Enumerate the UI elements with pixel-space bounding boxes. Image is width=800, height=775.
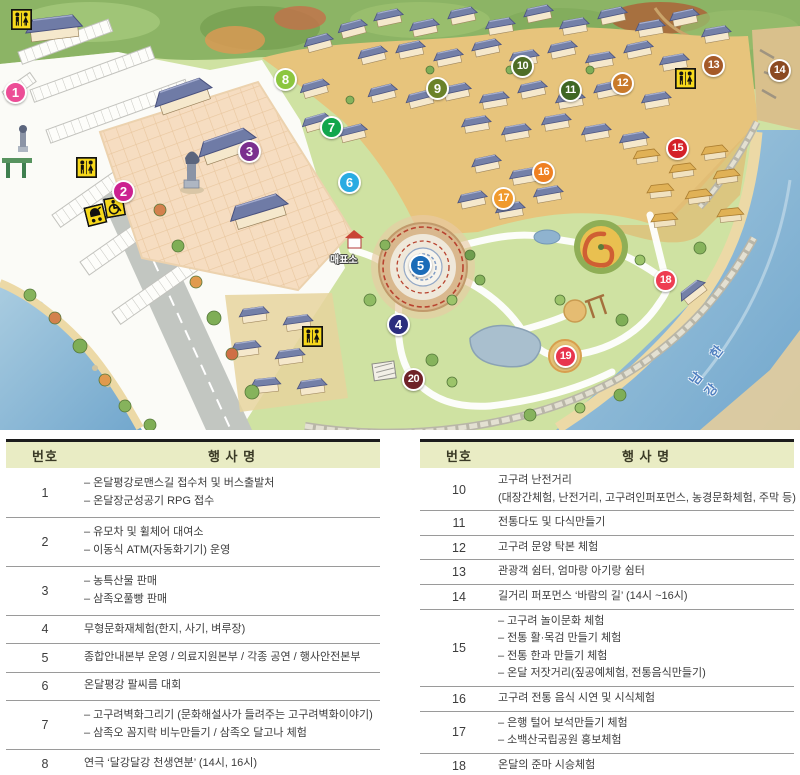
event-number: 1 bbox=[6, 469, 84, 518]
event-name: 연극 ‘달강달강 천생연분’ (14시, 16시) bbox=[84, 749, 380, 775]
legend-row: 6온달평강 팔씨름 대회 bbox=[6, 672, 380, 700]
map-marker-5[interactable]: 5 bbox=[409, 254, 432, 277]
event-name: 전통다도 및 다식만들기 bbox=[498, 511, 794, 536]
header-number: 번호 bbox=[420, 441, 498, 469]
event-name: 관광객 쉼터, 엄마랑 아기랑 쉼터 bbox=[498, 560, 794, 585]
map-marker-7[interactable]: 7 bbox=[320, 116, 343, 139]
header-event-name: 행 사 명 bbox=[498, 441, 794, 469]
event-number: 2 bbox=[6, 517, 84, 566]
map-marker-11[interactable]: 11 bbox=[559, 79, 582, 102]
event-name: 고구려 난전거리(대장간체험, 난전거리, 고구려인퍼포먼스, 농경문화체험, … bbox=[498, 469, 794, 511]
toilet-icon bbox=[675, 68, 696, 94]
event-name: – 고구려 놀이문화 체험– 전통 활·목검 만들기 체험– 전통 한과 만들기… bbox=[498, 609, 794, 686]
map-marker-16[interactable]: 16 bbox=[532, 161, 555, 184]
event-number: 8 bbox=[6, 749, 84, 775]
legend-row: 13관광객 쉼터, 엄마랑 아기랑 쉼터 bbox=[420, 560, 794, 585]
legend-header-row: 번호 행 사 명 bbox=[420, 441, 794, 469]
event-number: 18 bbox=[420, 753, 498, 775]
map-marker-12[interactable]: 12 bbox=[611, 72, 634, 95]
legend-row: 7– 고구려벽화그리기 (문화해설사가 들려주는 고구려벽화이야기)– 삼족오 … bbox=[6, 701, 380, 750]
map-marker-10[interactable]: 10 bbox=[511, 55, 534, 78]
event-number: 5 bbox=[6, 644, 84, 672]
map-marker-4[interactable]: 4 bbox=[387, 313, 410, 336]
legend-row: 8연극 ‘달강달강 천생연분’ (14시, 16시) bbox=[6, 749, 380, 775]
legend-row: 11전통다도 및 다식만들기 bbox=[420, 511, 794, 536]
event-number: 6 bbox=[6, 672, 84, 700]
event-name: 온달의 준마 시승체험 bbox=[498, 753, 794, 775]
event-number: 14 bbox=[420, 584, 498, 609]
spiral-garden bbox=[574, 220, 628, 274]
map-marker-15[interactable]: 15 bbox=[666, 137, 689, 160]
legend-row: 14길거리 퍼포먼스 ‘바람의 길’ (14시 ~16시) bbox=[420, 584, 794, 609]
toilet-icon bbox=[76, 157, 97, 183]
map-marker-1[interactable]: 1 bbox=[4, 81, 27, 104]
event-number: 15 bbox=[420, 609, 498, 686]
event-number: 13 bbox=[420, 560, 498, 585]
game-board bbox=[372, 361, 396, 381]
legend-row: 2– 유모차 및 휠체어 대여소– 이동식 ATM(자동화기기) 운영 bbox=[6, 517, 380, 566]
legend-table-left: 번호 행 사 명 1– 온달평강로맨스길 접수처 및 버스출발처– 온달장군성공… bbox=[6, 439, 380, 775]
legend-section: 번호 행 사 명 1– 온달평강로맨스길 접수처 및 버스출발처– 온달장군성공… bbox=[0, 430, 800, 775]
map-marker-13[interactable]: 13 bbox=[702, 54, 725, 77]
event-number: 4 bbox=[6, 615, 84, 643]
header-number: 번호 bbox=[6, 441, 84, 469]
legend-header-row: 번호 행 사 명 bbox=[6, 441, 380, 469]
map-marker-3[interactable]: 3 bbox=[238, 140, 261, 163]
map-marker-20[interactable]: 20 bbox=[402, 368, 425, 391]
event-number: 12 bbox=[420, 535, 498, 560]
event-name: 고구려 문양 탁본 체험 bbox=[498, 535, 794, 560]
event-number: 10 bbox=[420, 469, 498, 511]
map-marker-19[interactable]: 19 bbox=[554, 345, 577, 368]
legend-row: 16고구려 전통 음식 시연 및 시식체험 bbox=[420, 686, 794, 711]
event-name: – 유모차 및 휠체어 대여소– 이동식 ATM(자동화기기) 운영 bbox=[84, 517, 380, 566]
legend-row: 4무형문화재체험(한지, 사기, 벼루장) bbox=[6, 615, 380, 643]
event-name: – 농특산물 판매– 삼족오풀빵 판매 bbox=[84, 566, 380, 615]
header-event-name: 행 사 명 bbox=[84, 441, 380, 469]
legend-row: 5종합안내본부 운영 / 의료지원본부 / 각종 공연 / 행사안전본부 bbox=[6, 644, 380, 672]
legend-row: 1– 온달평강로맨스길 접수처 및 버스출발처– 온달장군성공기 RPG 접수 bbox=[6, 469, 380, 518]
event-name: 온달평강 팔씨름 대회 bbox=[84, 672, 380, 700]
map-marker-14[interactable]: 14 bbox=[768, 59, 791, 82]
event-name: 길거리 퍼포먼스 ‘바람의 길’ (14시 ~16시) bbox=[498, 584, 794, 609]
event-number: 17 bbox=[420, 711, 498, 753]
festival-map-page: 매표소 남 한 강 123456789101112131415161718192… bbox=[0, 0, 800, 775]
map-marker-17[interactable]: 17 bbox=[492, 187, 515, 210]
event-name: 종합안내본부 운영 / 의료지원본부 / 각종 공연 / 행사안전본부 bbox=[84, 644, 380, 672]
event-number: 3 bbox=[6, 566, 84, 615]
ticket-office-label: 매표소 bbox=[330, 251, 358, 266]
event-name: 무형문화재체험(한지, 사기, 벼루장) bbox=[84, 615, 380, 643]
event-number: 16 bbox=[420, 686, 498, 711]
map-marker-6[interactable]: 6 bbox=[338, 171, 361, 194]
event-name: – 은행 털어 보석만들기 체험– 소백산국립공원 홍보체험 bbox=[498, 711, 794, 753]
event-number: 7 bbox=[6, 701, 84, 750]
legend-row: 10고구려 난전거리(대장간체험, 난전거리, 고구려인퍼포먼스, 농경문화체험… bbox=[420, 469, 794, 511]
legend-row: 18온달의 준마 시승체험 bbox=[420, 753, 794, 775]
event-number: 11 bbox=[420, 511, 498, 536]
legend-row: 3– 농특산물 판매– 삼족오풀빵 판매 bbox=[6, 566, 380, 615]
legend-row: 17– 은행 털어 보석만들기 체험– 소백산국립공원 홍보체험 bbox=[420, 711, 794, 753]
map-marker-18[interactable]: 18 bbox=[654, 269, 677, 292]
legend-row: 12고구려 문양 탁본 체험 bbox=[420, 535, 794, 560]
event-name: – 고구려벽화그리기 (문화해설사가 들려주는 고구려벽화이야기)– 삼족오 꼼… bbox=[84, 701, 380, 750]
toilet-icon bbox=[302, 326, 323, 352]
event-name: – 온달평강로맨스길 접수처 및 버스출발처– 온달장군성공기 RPG 접수 bbox=[84, 469, 380, 518]
map-marker-9[interactable]: 9 bbox=[426, 77, 449, 100]
toilet-icon bbox=[11, 9, 32, 35]
map-marker-2[interactable]: 2 bbox=[112, 180, 135, 203]
event-name: 고구려 전통 음식 시연 및 시식체험 bbox=[498, 686, 794, 711]
legend-table-right: 번호 행 사 명 10고구려 난전거리(대장간체험, 난전거리, 고구려인퍼포먼… bbox=[420, 439, 794, 775]
park-map: 매표소 남 한 강 123456789101112131415161718192… bbox=[0, 0, 800, 430]
map-marker-8[interactable]: 8 bbox=[274, 68, 297, 91]
legend-row: 15– 고구려 놀이문화 체험– 전통 활·목검 만들기 체험– 전통 한과 만… bbox=[420, 609, 794, 686]
